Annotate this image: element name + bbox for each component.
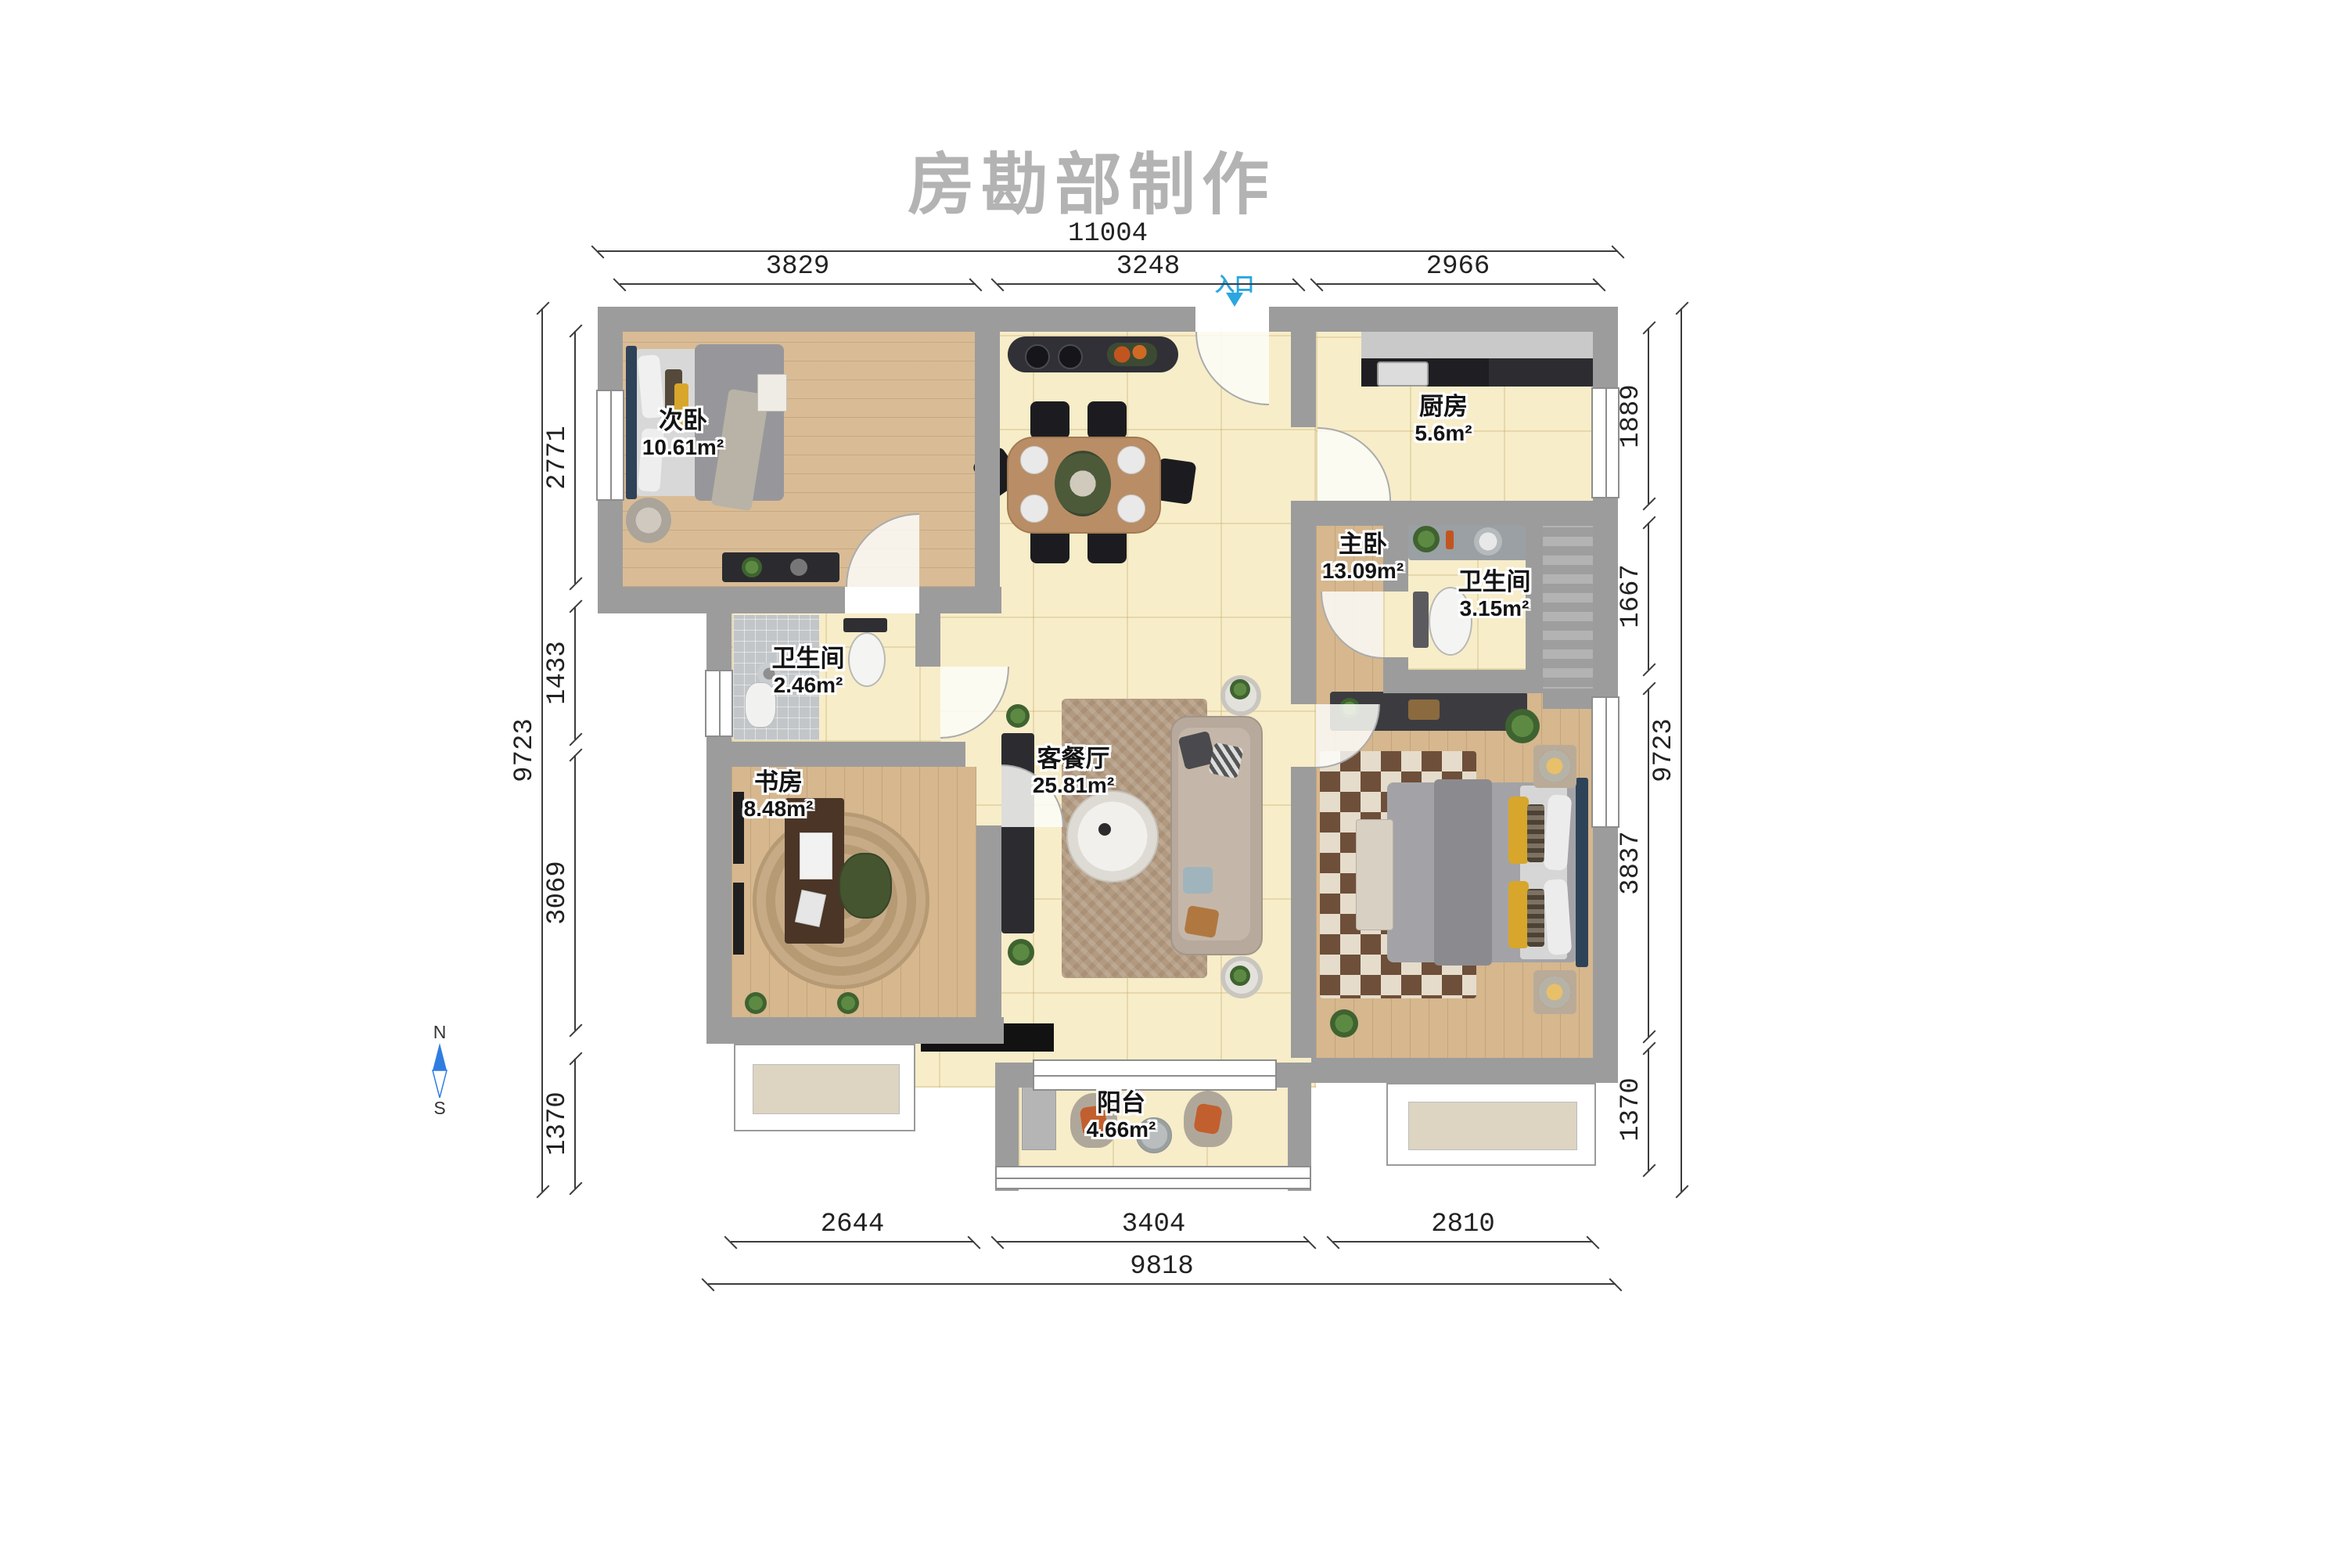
entrance-opening <box>1195 307 1269 332</box>
toilet-tank <box>843 618 887 632</box>
dim-left-seg-3: 3069 <box>574 755 576 1030</box>
dim-left-seg-2: 1433 <box>574 606 576 739</box>
room-label-bathroom-small: 卫生间2.46m² <box>772 645 845 698</box>
secondary-dresser <box>722 552 839 582</box>
window-bathroom-small <box>705 670 733 737</box>
utility-shaft <box>1543 501 1593 696</box>
bathroom-basin <box>1474 527 1502 556</box>
wall-top <box>598 307 1618 332</box>
master-plaid-pillow <box>1527 804 1544 862</box>
wall-master-left-lower <box>1291 767 1316 1058</box>
dresser-decor <box>790 559 807 576</box>
plant-icon <box>1230 679 1250 699</box>
wall-bathroom-small-bottom <box>706 742 965 767</box>
plant-icon <box>1505 709 1540 743</box>
table-centerpiece-plant <box>1055 451 1111 516</box>
dim-top-seg-2: 3248 <box>998 283 1299 285</box>
wall-below-secondary-bedroom <box>598 587 1001 613</box>
kitchen-backsplash <box>1361 332 1593 360</box>
sofa-pillow-blue <box>1183 867 1213 894</box>
secondary-bedroom-rug <box>626 498 671 543</box>
wall-study-right <box>976 825 1001 1017</box>
window-kitchen <box>1591 387 1619 498</box>
kitchen-sink <box>1377 361 1429 387</box>
room-label-living-dining: 客餐厅25.81m² <box>1033 745 1114 798</box>
compass-south-label: S <box>422 1098 457 1119</box>
lamp-icon <box>1538 750 1571 782</box>
wall-secondary-bedroom-right <box>975 332 1000 587</box>
dim-right-seg-2: 1667 <box>1648 523 1649 670</box>
faucet-decor <box>1446 530 1454 549</box>
bay-window-master <box>1386 1083 1596 1166</box>
study-chair <box>839 853 892 919</box>
tv-console <box>1001 733 1034 933</box>
secondary-bedroom-door-opening <box>845 587 919 613</box>
dining-chair <box>1087 401 1127 439</box>
sideboard-flowers <box>1107 343 1157 366</box>
bookshelf <box>733 883 744 955</box>
wall-study-bottom <box>706 1017 1004 1044</box>
dim-left-seg-1: 2771 <box>574 331 576 584</box>
master-bed-headboard <box>1576 778 1588 967</box>
sideboard-plate <box>1058 344 1083 369</box>
toilet-tank <box>1413 592 1429 648</box>
dim-bottom-seg-2: 3404 <box>998 1241 1310 1243</box>
sliding-door-balcony <box>1033 1059 1277 1091</box>
plant-icon <box>1330 1009 1358 1038</box>
room-label-master-bedroom: 主卧13.09m² <box>1322 530 1404 584</box>
dining-chair <box>1030 401 1069 439</box>
bay-window-seat <box>753 1064 900 1114</box>
table-plate <box>1117 446 1145 474</box>
entrance-arrow-icon <box>1226 293 1243 307</box>
room-label-secondary-bedroom: 次卧10.61m² <box>642 407 724 460</box>
room-label-master-bathroom: 卫生间3.15m² <box>1458 568 1531 621</box>
plant-icon <box>837 992 859 1014</box>
balcony-chair-cushion <box>1193 1102 1223 1135</box>
wall-kitchen-left-upper <box>1291 332 1316 427</box>
wall-master-bath-left-lower <box>1383 657 1408 670</box>
bed-end-bench <box>1356 819 1393 930</box>
dim-top-seg-1: 3829 <box>620 283 976 285</box>
plant-icon <box>742 557 762 577</box>
master-yellow-pillow <box>1508 797 1529 864</box>
toilet-bowl <box>848 632 886 687</box>
dim-right-seg-1: 1889 <box>1648 328 1649 504</box>
sofa-pillow-orange <box>1184 905 1220 938</box>
plant-icon <box>1230 966 1250 986</box>
window-balcony <box>995 1166 1311 1189</box>
coffee-table <box>1066 790 1159 883</box>
floor-plan-canvas: 房勘部制作 <box>0 0 2351 1568</box>
dim-right-total: 9723 <box>1681 308 1682 1192</box>
wall-master-bath-bottom <box>1383 670 1543 693</box>
sofa-pillow-striped <box>1208 742 1243 779</box>
dim-left-seg-4: 1370 <box>574 1059 576 1189</box>
plant-icon <box>745 992 767 1014</box>
dim-bottom-seg-1: 2644 <box>731 1241 974 1243</box>
wall-shaft-bottom <box>1543 689 1593 709</box>
master-bed-blanket <box>1434 779 1492 966</box>
table-plate <box>1117 494 1145 523</box>
plant-icon <box>1008 939 1034 966</box>
compass-needle-icon <box>430 1043 450 1098</box>
coffee-table-decor <box>1098 823 1111 836</box>
compass-icon: N S <box>422 1022 457 1119</box>
window-master-side <box>1591 696 1619 828</box>
window-secondary-bedroom <box>596 390 624 501</box>
room-label-kitchen: 厨房5.6m² <box>1415 393 1472 446</box>
page-title: 房勘部制作 <box>908 130 1275 228</box>
master-yellow-pillow <box>1508 881 1529 948</box>
plant-icon <box>1006 704 1030 728</box>
wall-master-left-upper <box>1291 526 1316 704</box>
dim-right-seg-3: 3837 <box>1648 689 1649 1037</box>
bay-window-study <box>734 1044 915 1131</box>
bookshelf <box>733 792 744 864</box>
shelf-decor <box>1408 699 1440 720</box>
master-plaid-pillow <box>1527 889 1544 947</box>
table-plate <box>1020 494 1048 523</box>
compass-north-label: N <box>422 1022 457 1043</box>
room-label-balcony: 阳台4.66m² <box>1087 1089 1156 1142</box>
dim-right-seg-4: 1370 <box>1648 1048 1649 1171</box>
secondary-nightstand <box>757 374 787 412</box>
wall-master-bottom <box>1311 1058 1618 1083</box>
plant-icon <box>1413 526 1440 552</box>
secondary-bed-headboard <box>626 346 637 499</box>
dim-bottom-total: 9818 <box>708 1283 1616 1285</box>
desk-monitor <box>800 833 832 879</box>
table-plate <box>1020 446 1048 474</box>
sideboard-plate <box>1025 344 1050 369</box>
wall-kitchen-bottom <box>1291 501 1618 526</box>
bay-window-seat <box>1408 1102 1577 1150</box>
dim-top-seg-3: 2966 <box>1317 283 1599 285</box>
room-label-study: 书房8.48m² <box>744 768 814 822</box>
dim-bottom-seg-3: 2810 <box>1333 1241 1593 1243</box>
lamp-icon <box>1538 976 1571 1009</box>
